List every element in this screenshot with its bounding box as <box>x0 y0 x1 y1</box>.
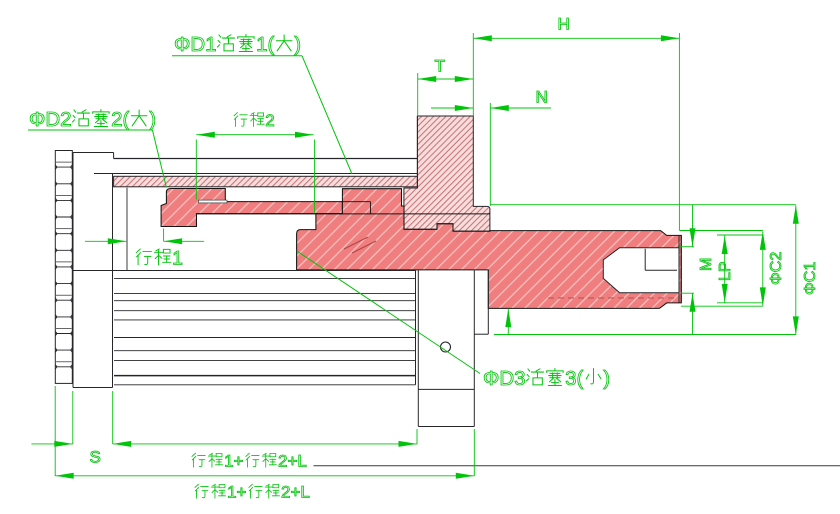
svg-text:ΦD3: ΦD3 <box>483 367 526 390</box>
svg-text:2+L: 2+L <box>278 452 307 471</box>
svg-text:3(: 3( <box>565 367 583 390</box>
svg-text:LP: LP <box>717 261 734 281</box>
svg-text:H: H <box>558 15 570 34</box>
svg-text:T: T <box>435 57 445 76</box>
svg-text:S: S <box>90 448 101 467</box>
svg-text:M: M <box>698 258 715 271</box>
svg-text:ΦC1: ΦC1 <box>802 262 819 295</box>
svg-text:2: 2 <box>265 111 274 130</box>
svg-text:1(: 1( <box>256 33 274 56</box>
svg-text:): ) <box>149 108 156 131</box>
svg-text:1+: 1+ <box>224 452 243 471</box>
svg-text:ΦC2: ΦC2 <box>768 252 785 285</box>
svg-text:): ) <box>603 367 610 390</box>
svg-text:2(: 2( <box>111 108 129 131</box>
svg-text:): ) <box>294 33 301 56</box>
svg-text:2+L: 2+L <box>281 483 310 502</box>
svg-text:1: 1 <box>172 248 183 270</box>
svg-text:ΦD1: ΦD1 <box>174 33 217 56</box>
svg-text:1+: 1+ <box>227 483 246 502</box>
svg-text:N: N <box>536 88 548 107</box>
svg-text:ΦD2: ΦD2 <box>29 108 72 131</box>
